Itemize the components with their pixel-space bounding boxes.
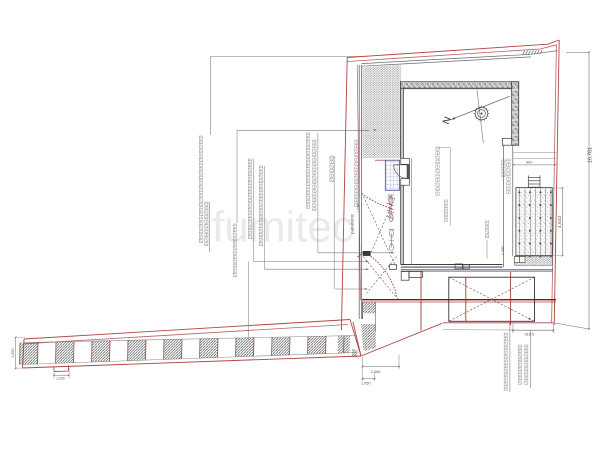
svg-text:LGWC: LGWC — [357, 201, 361, 212]
svg-text:900: 900 — [526, 161, 532, 165]
svg-text:4,543: 4,543 — [557, 216, 563, 228]
svg-text:1,200: 1,200 — [56, 377, 64, 381]
svg-text:1,050: 1,050 — [11, 348, 15, 358]
svg-text:916.5: 916.5 — [525, 333, 535, 337]
svg-text:16,781: 16,781 — [588, 147, 594, 163]
svg-text:panasonic: panasonic — [350, 213, 355, 234]
svg-text:1,050: 1,050 — [361, 382, 371, 386]
svg-text:1,380: 1,380 — [501, 246, 505, 255]
svg-text:2,060: 2,060 — [371, 370, 381, 374]
